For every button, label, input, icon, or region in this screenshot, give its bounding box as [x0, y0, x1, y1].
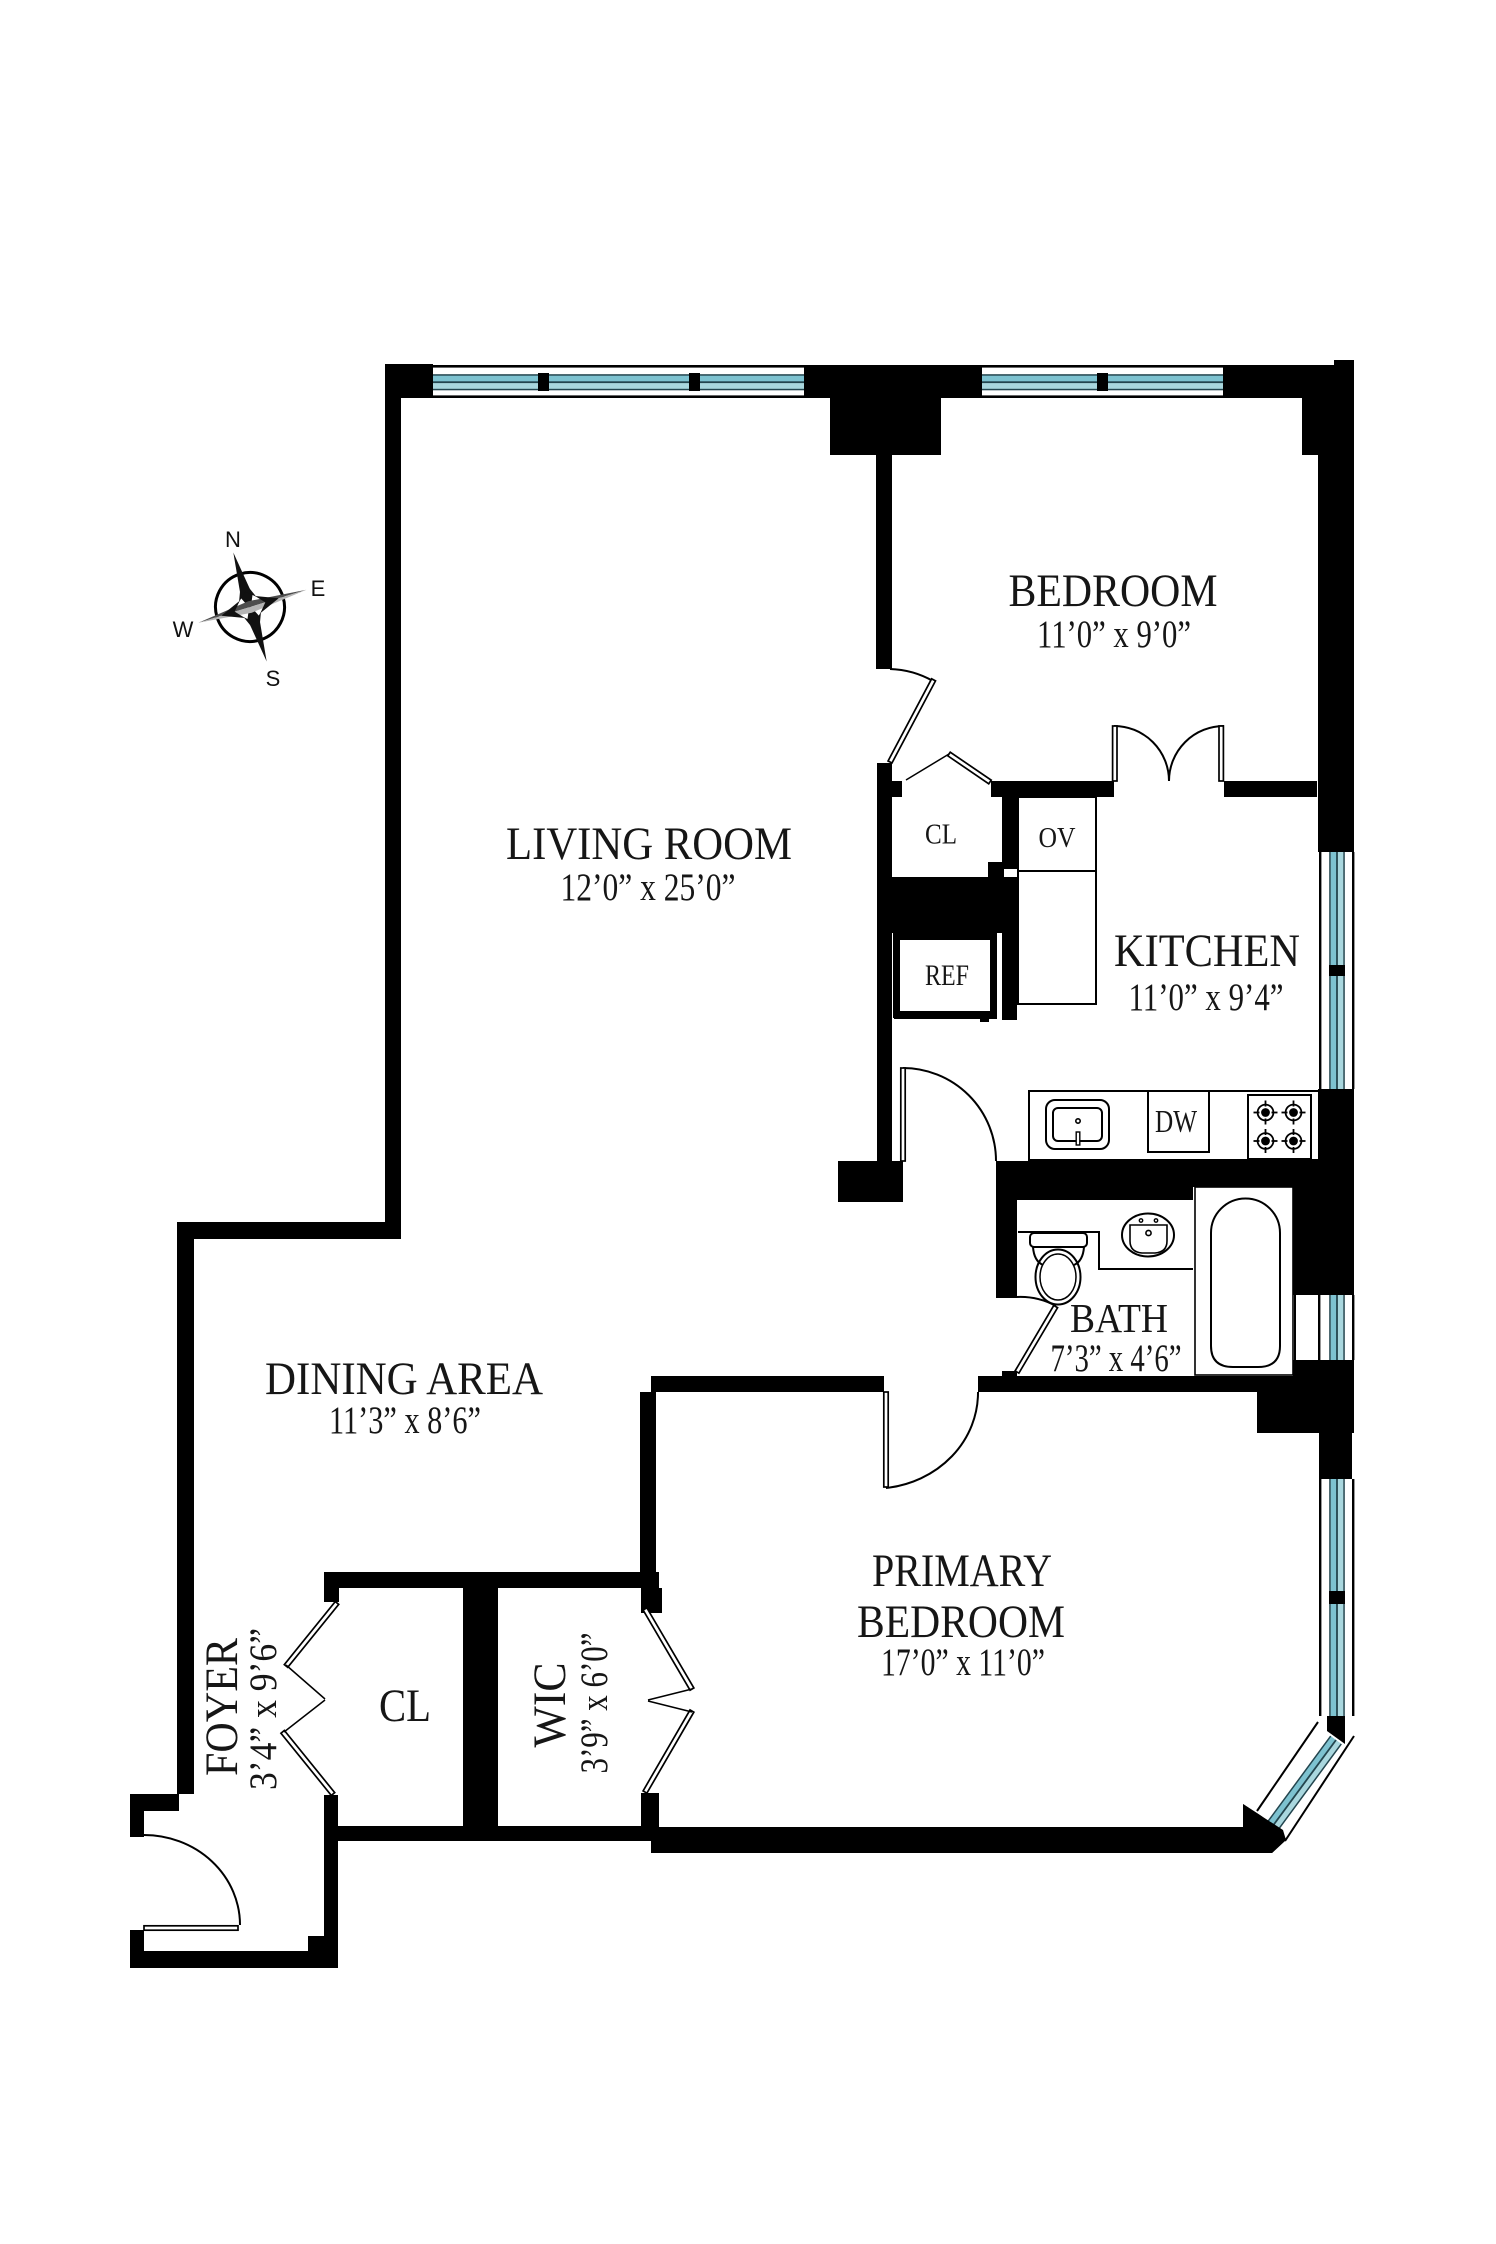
svg-text:CL: CL	[379, 1680, 431, 1732]
svg-text:WIC: WIC	[524, 1663, 576, 1748]
svg-text:N: N	[225, 527, 241, 552]
svg-text:S: S	[266, 666, 281, 691]
svg-text:BEDROOM: BEDROOM	[1009, 565, 1218, 617]
svg-text:PRIMARY: PRIMARY	[872, 1545, 1052, 1597]
svg-text:17’0” x 11’0”: 17’0” x 11’0”	[881, 1641, 1045, 1684]
svg-text:7’3” x 4’6”: 7’3” x 4’6”	[1051, 1337, 1182, 1380]
svg-text:3’4” x 9’6”: 3’4” x 9’6”	[242, 1628, 285, 1790]
svg-text:11’3” x 8’6”: 11’3” x 8’6”	[329, 1398, 481, 1442]
svg-text:11’0” x 9’0”: 11’0” x 9’0”	[1037, 612, 1191, 656]
svg-text:BATH: BATH	[1070, 1295, 1168, 1341]
svg-text:DW: DW	[1155, 1103, 1198, 1139]
svg-text:W: W	[173, 617, 194, 642]
svg-text:E: E	[311, 576, 326, 601]
svg-text:KITCHEN: KITCHEN	[1114, 925, 1300, 977]
svg-text:OV: OV	[1039, 822, 1076, 854]
svg-text:11’0” x 9’4”: 11’0” x 9’4”	[1129, 975, 1284, 1019]
svg-text:12’0” x 25’0”: 12’0” x 25’0”	[561, 865, 736, 909]
svg-text:REF: REF	[925, 959, 969, 992]
svg-text:FOYER: FOYER	[196, 1637, 248, 1776]
svg-text:LIVING ROOM: LIVING ROOM	[506, 818, 792, 870]
svg-text:3’9” x 6’0”: 3’9” x 6’0”	[573, 1633, 616, 1774]
svg-text:CL: CL	[925, 820, 957, 851]
